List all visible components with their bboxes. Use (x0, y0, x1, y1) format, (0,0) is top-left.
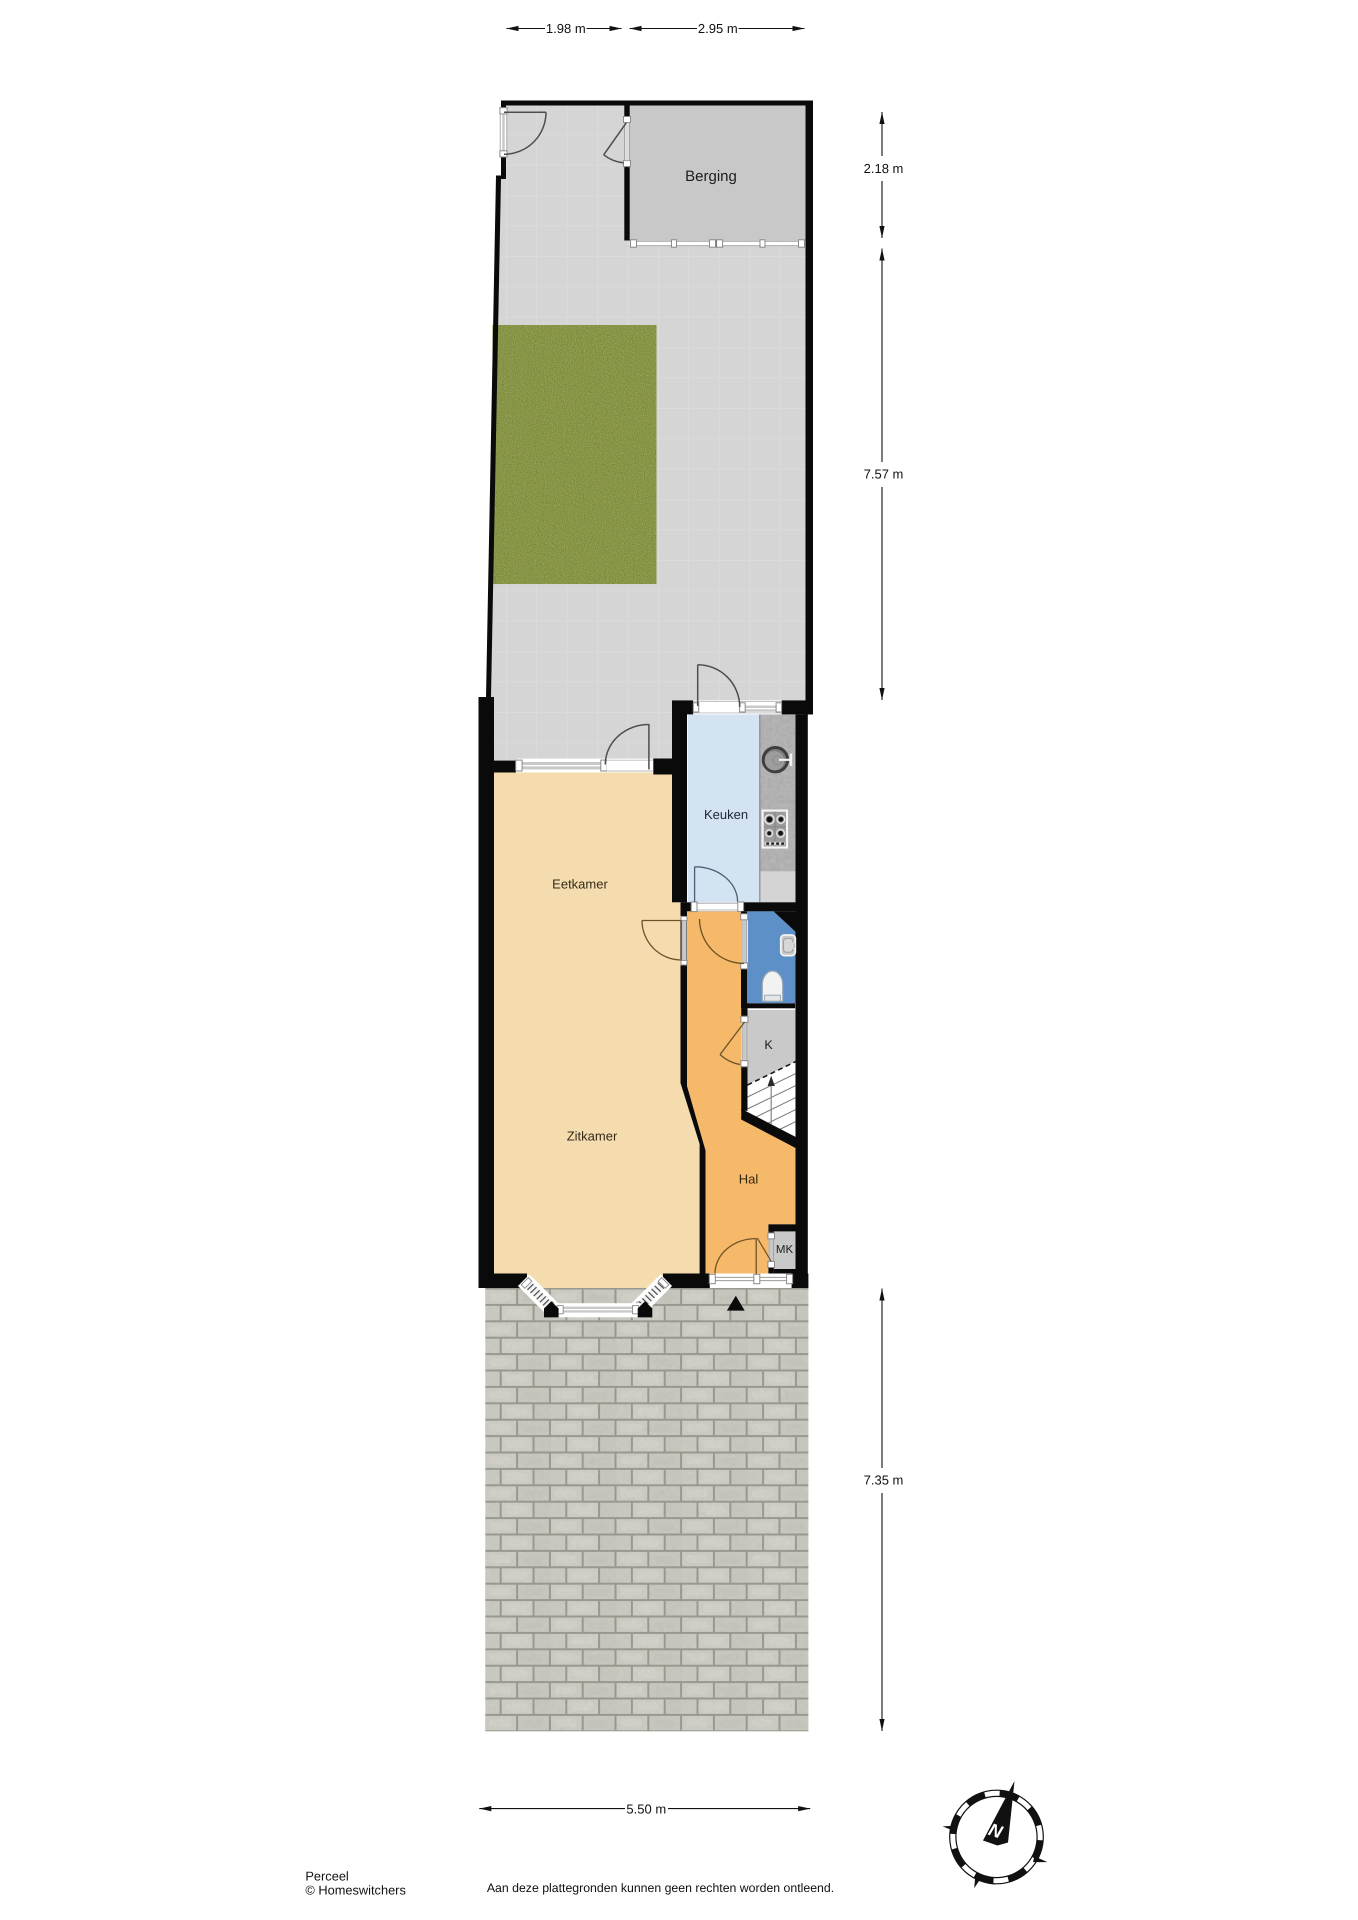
svg-text:1.98 m: 1.98 m (546, 21, 586, 36)
svg-text:Zitkamer: Zitkamer (567, 1129, 618, 1144)
svg-text:Perceel: Perceel (305, 1869, 348, 1884)
svg-text:2.18 m: 2.18 m (864, 161, 904, 176)
svg-text:MK: MK (776, 1244, 794, 1256)
svg-text:Berging: Berging (685, 168, 737, 185)
svg-text:7.35 m: 7.35 m (864, 1473, 904, 1488)
svg-text:Hal: Hal (739, 1172, 759, 1187)
svg-text:Eetkamer: Eetkamer (552, 877, 608, 892)
svg-text:K: K (764, 1038, 773, 1052)
svg-text:Aan deze plattegronden kunnen: Aan deze plattegronden kunnen geen recht… (487, 1881, 834, 1895)
svg-text:2.95 m: 2.95 m (698, 21, 738, 36)
svg-text:Keuken: Keuken (704, 807, 748, 822)
svg-text:© Homeswitchers: © Homeswitchers (305, 1883, 405, 1898)
svg-text:7.57 m: 7.57 m (864, 467, 904, 482)
svg-text:5.50 m: 5.50 m (626, 1801, 666, 1816)
